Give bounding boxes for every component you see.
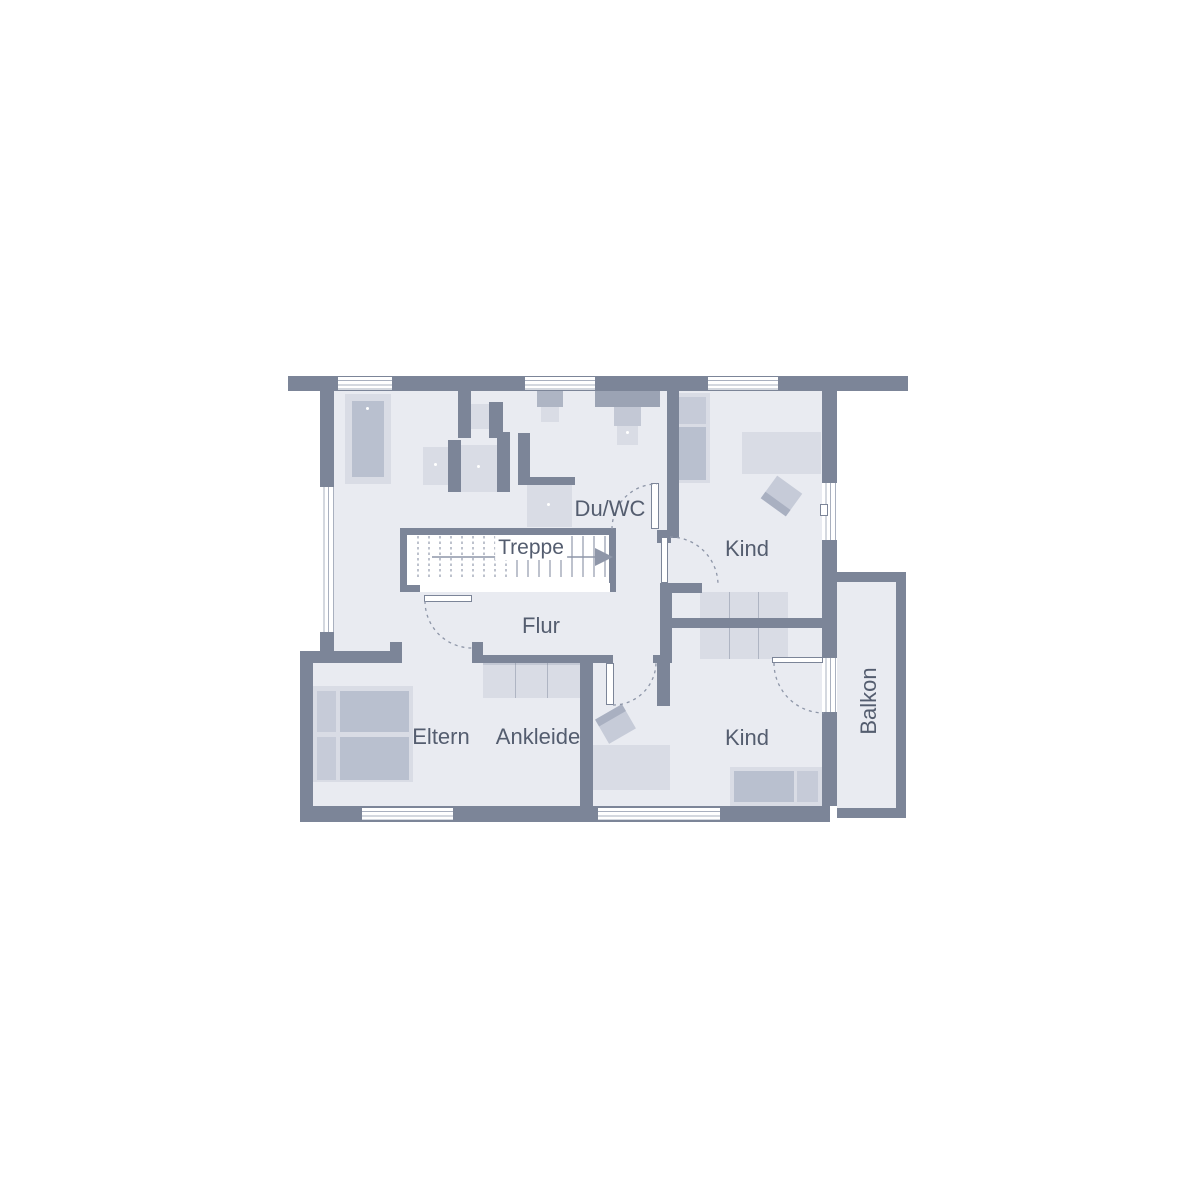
- wall-shower-bar: [518, 477, 575, 485]
- wall-ankleide-top: [472, 655, 613, 663]
- room-label-eltern: Eltern: [412, 724, 469, 750]
- wardrobe-divider: [729, 592, 730, 618]
- bed-parents-mattress-1: [340, 691, 409, 732]
- installation-wall: [595, 391, 660, 407]
- washbasin-left: [423, 447, 449, 485]
- door-leaf-kind-bottom: [606, 663, 614, 705]
- bed-child-top-pillow: [676, 397, 706, 424]
- wc-dot: [626, 431, 629, 434]
- wardrobe-divider: [547, 663, 548, 698]
- door-leaf-balcony: [772, 657, 823, 663]
- wardrobe-divider: [729, 628, 730, 659]
- washbasin-right-dot: [477, 465, 480, 468]
- window-top-3: [708, 377, 778, 390]
- wall-door-foot: [653, 655, 672, 663]
- wall-ankleide-east: [580, 663, 593, 806]
- room-label-kind-bottom: Kind: [725, 725, 769, 751]
- window-top-1: [338, 377, 392, 390]
- washbasin-right: [461, 445, 497, 492]
- window-left: [320, 487, 334, 632]
- wall-step-horizontal: [300, 651, 402, 663]
- wall-balcony-bottom: [837, 808, 906, 818]
- wall-stairs-left: [400, 535, 407, 592]
- room-label-flur: Flur: [522, 613, 560, 639]
- wc-bowl-left: [541, 407, 559, 422]
- wall-stairs-top: [400, 528, 616, 535]
- window-bottom-2: [598, 808, 720, 820]
- wall-duwc-east: [667, 391, 679, 538]
- window-bottom-1: [362, 808, 453, 820]
- shower-drain: [547, 503, 550, 506]
- bathtub-drain: [366, 407, 369, 410]
- bed-parents-pillow-1: [317, 691, 336, 732]
- bed-parents-mattress-2: [340, 737, 409, 780]
- wall-right-lower: [822, 712, 837, 806]
- wall-basin-back-1: [448, 440, 461, 492]
- floor-plan-canvas: Du/WC Treppe Kind Flur Eltern Ankleide K…: [0, 0, 1200, 1200]
- wall-bath-stub: [458, 391, 471, 438]
- desk-child-bottom: [593, 745, 670, 790]
- door-leaf-eltern: [424, 595, 472, 602]
- balcony-door-glass: [822, 658, 837, 712]
- bed-child-top-mattress: [676, 427, 706, 480]
- wardrobe-divider: [758, 628, 759, 659]
- room-label-kind-top: Kind: [725, 536, 769, 562]
- wall-flur-west-stub: [390, 642, 402, 663]
- wall-kindtop-south: [660, 583, 702, 593]
- room-label-duwc: Du/WC: [575, 496, 646, 522]
- wardrobe-child-top-upper: [700, 592, 788, 618]
- room-label-ankleide: Ankleide: [496, 724, 580, 750]
- bed-parents-pillow-2: [317, 737, 336, 780]
- bed-child-bottom-mattress: [734, 771, 794, 802]
- wall-kindbottom-entry: [657, 663, 670, 706]
- washbasin-left-dot: [434, 463, 437, 466]
- shower: [527, 485, 572, 527]
- bathtub-inner: [352, 401, 384, 477]
- wc-cistern-right: [614, 407, 641, 426]
- wc-bowl-right: [617, 426, 638, 445]
- room-label-balkon: Balkon: [856, 667, 882, 734]
- wall-stairs-right: [609, 535, 616, 585]
- window-right-handle: [820, 504, 828, 516]
- desk-child-top: [742, 432, 821, 474]
- wall-left-upper: [320, 391, 334, 487]
- window-top-2: [525, 377, 595, 390]
- wc-cistern-left: [537, 391, 563, 407]
- stairs-landing: [420, 583, 610, 592]
- wall-right-upper: [822, 391, 837, 483]
- wardrobe-divider: [758, 592, 759, 618]
- wardrobe-ankleide: [483, 663, 580, 698]
- door-leaf-duwc: [651, 483, 659, 529]
- wall-kind-divider: [670, 618, 822, 628]
- door-leaf-kind-top: [661, 537, 668, 583]
- wall-balcony-top: [837, 572, 905, 582]
- wall-eltern-left: [300, 661, 313, 806]
- wall-right-middle: [822, 540, 837, 658]
- wall-ankleide-top-stub: [472, 642, 483, 657]
- room-label-treppe: Treppe: [495, 536, 567, 560]
- wardrobe-divider: [515, 663, 516, 698]
- wall-balcony-right: [896, 572, 906, 818]
- wardrobe-child-top-lower: [700, 628, 788, 659]
- bed-child-bottom-pillow: [797, 771, 818, 802]
- wall-basin-back-2: [497, 432, 510, 492]
